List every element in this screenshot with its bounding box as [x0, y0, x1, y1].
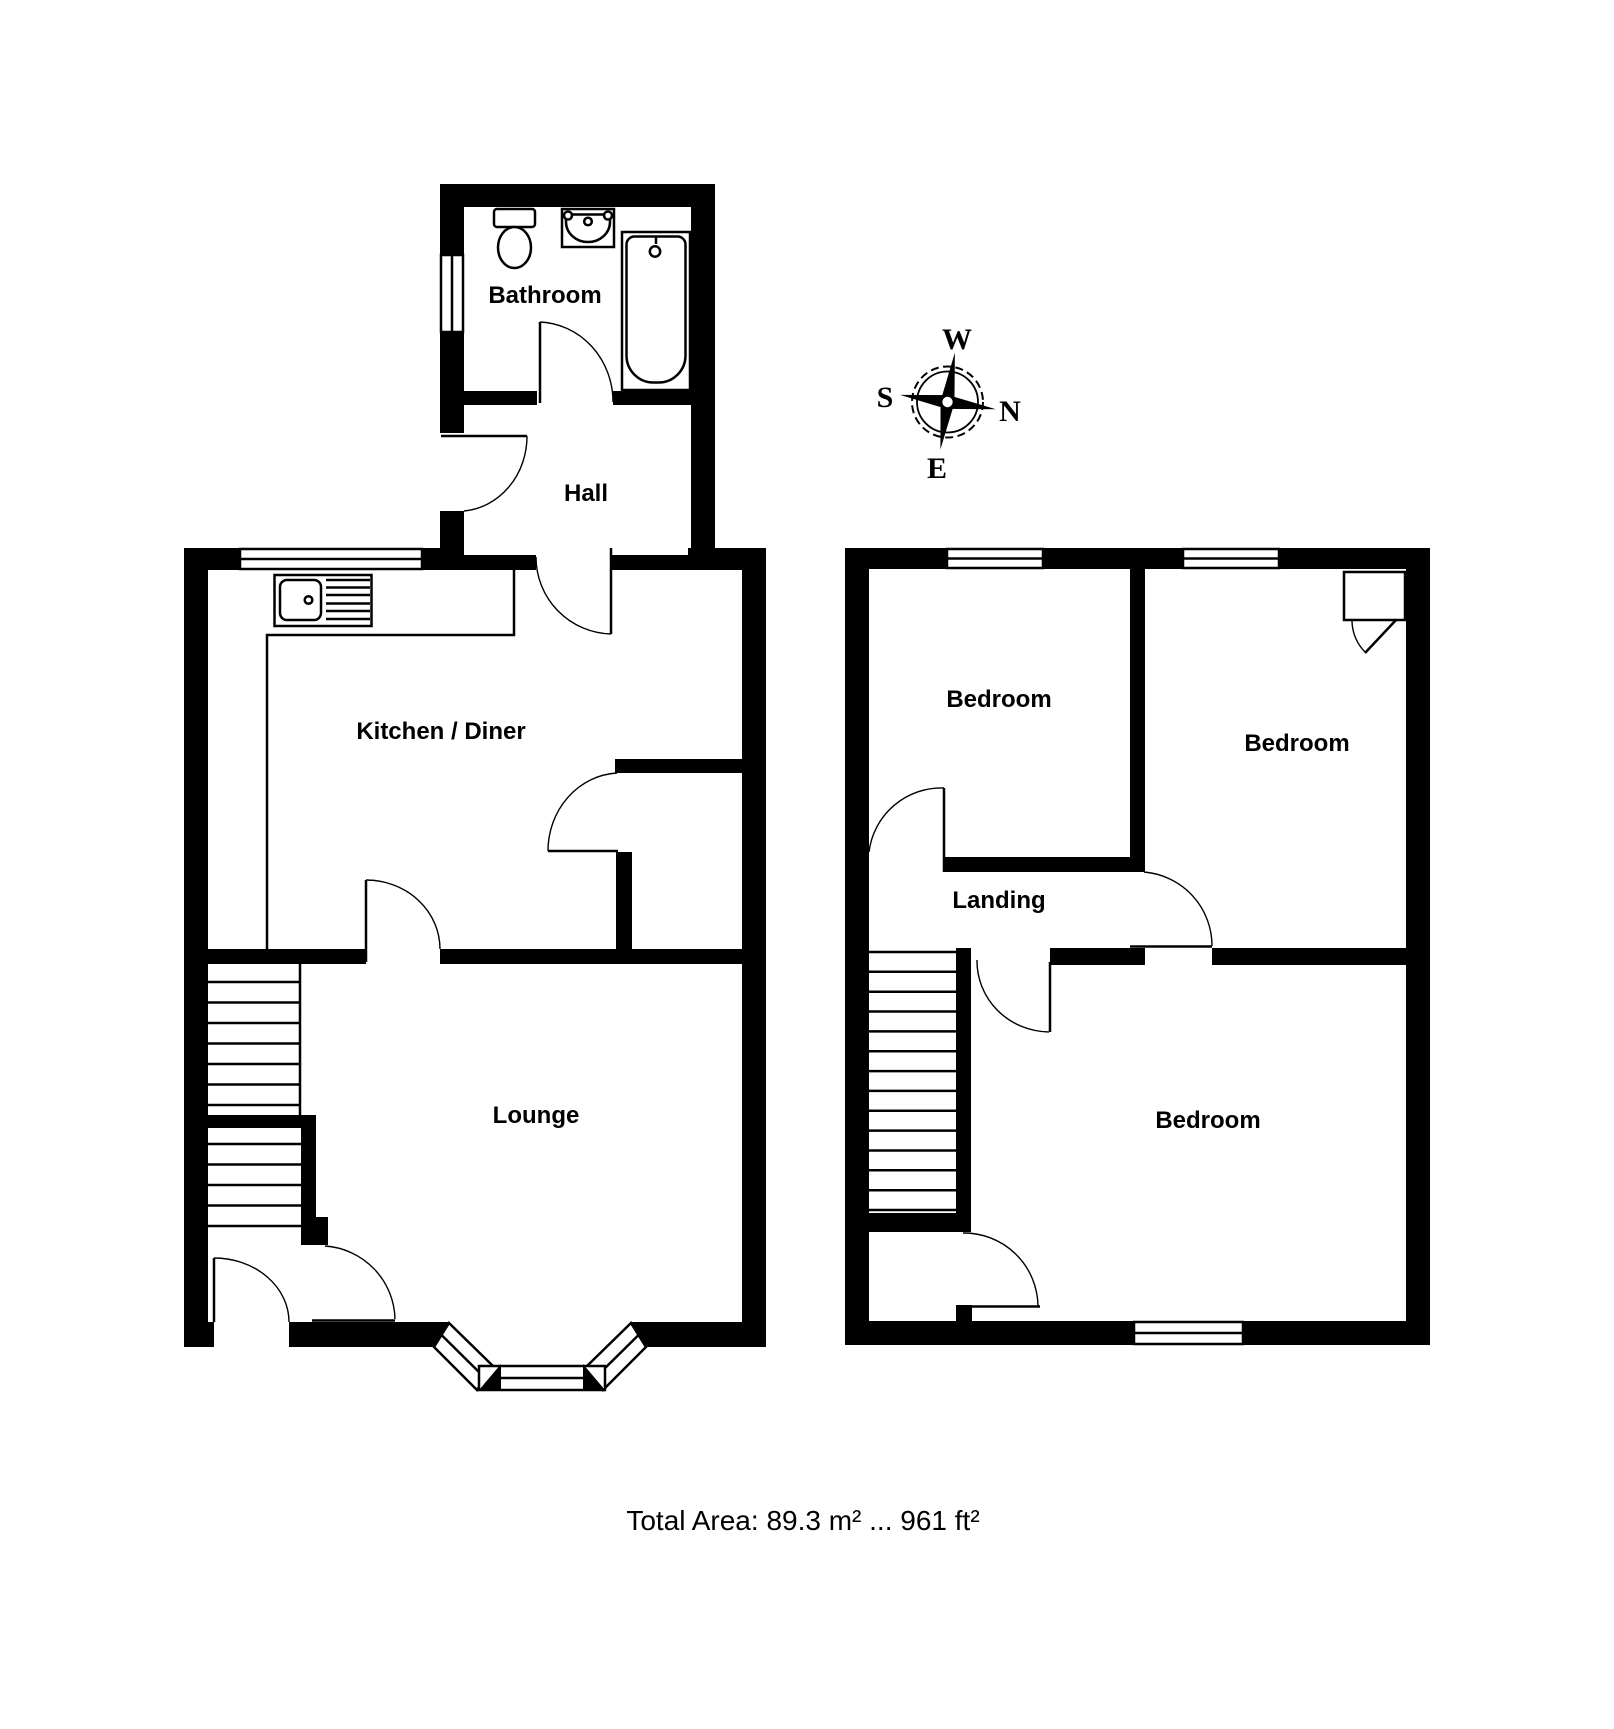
svg-text:Bedroom: Bedroom: [1155, 1107, 1260, 1134]
svg-text:Bedroom: Bedroom: [946, 686, 1051, 713]
svg-text:S: S: [877, 381, 894, 414]
svg-text:E: E: [927, 452, 947, 485]
svg-text:Total Area: 89.3 m² ... 961 ft: Total Area: 89.3 m² ... 961 ft²: [626, 1505, 979, 1536]
svg-text:Bedroom: Bedroom: [1244, 730, 1349, 757]
svg-text:W: W: [942, 323, 972, 356]
svg-text:Bathroom: Bathroom: [488, 282, 601, 309]
svg-text:Landing: Landing: [952, 887, 1045, 914]
svg-text:Kitchen / Diner: Kitchen / Diner: [356, 718, 525, 745]
svg-text:N: N: [999, 395, 1021, 428]
svg-text:Lounge: Lounge: [493, 1102, 580, 1129]
svg-text:Hall: Hall: [564, 480, 608, 507]
